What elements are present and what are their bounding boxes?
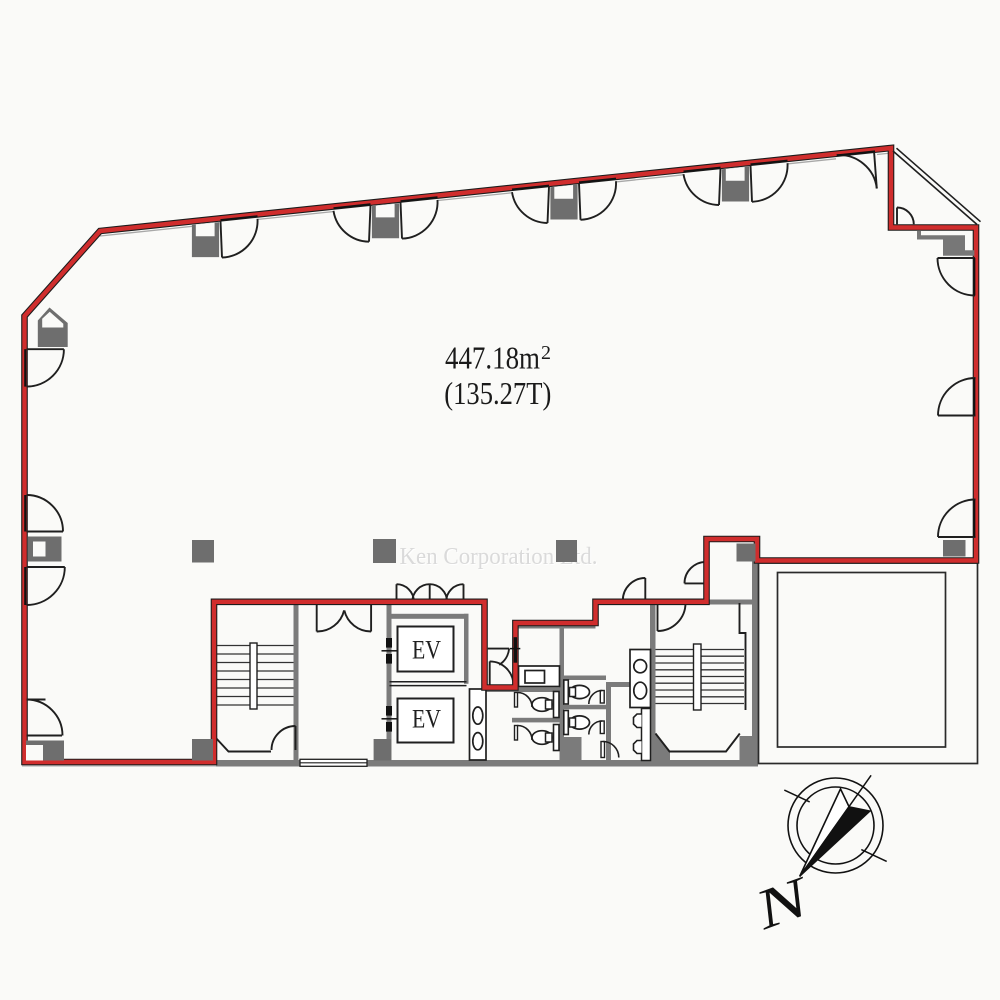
svg-text:EV: EV bbox=[412, 635, 441, 665]
svg-text:2: 2 bbox=[541, 342, 551, 364]
svg-text:447.18m: 447.18m bbox=[445, 341, 540, 376]
svg-text:(135.27T): (135.27T) bbox=[444, 376, 551, 411]
svg-text:EV: EV bbox=[412, 704, 441, 734]
